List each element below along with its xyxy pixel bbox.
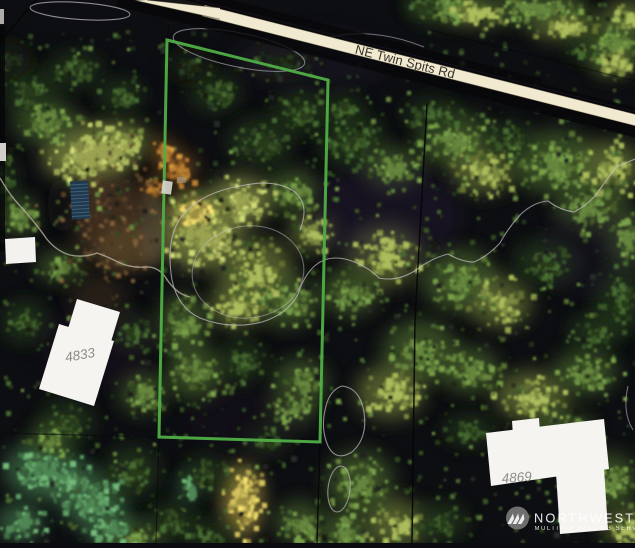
svg-text:MULTIPLE LISTING SERVICE: MULTIPLE LISTING SERVICE (535, 526, 635, 532)
svg-text:NORTHWEST: NORTHWEST (534, 511, 635, 526)
svg-text:4869: 4869 (501, 469, 532, 486)
